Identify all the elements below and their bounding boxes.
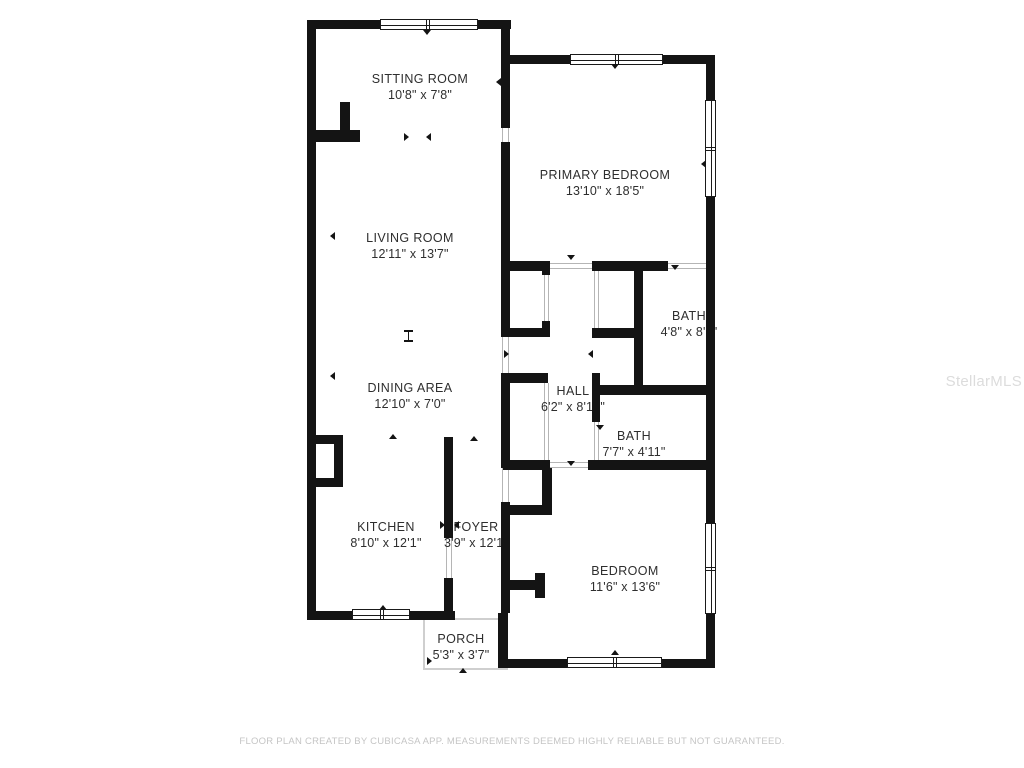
door-tick-icon [470,436,478,441]
door-tick-icon [454,521,459,529]
room-name: BATH [602,428,665,444]
room-dims: 10'8" x 7'8" [372,87,468,103]
room-name: SITTING ROOM [372,71,468,87]
window [380,19,478,30]
window [705,523,716,614]
room-dims: 7'7" x 4'11" [602,444,665,460]
room-name: BEDROOM [590,563,660,579]
door-opening-line [550,263,592,264]
room-label-dining-area: DINING AREA 12'10" x 7'0" [368,380,453,412]
stellar-mls-watermark: StellarMLS [946,373,1022,390]
wall [307,20,316,620]
door-opening-line [548,275,549,321]
wall [310,478,343,487]
door-opening-line [508,128,509,142]
door-tick-icon [330,372,335,380]
room-label-kitchen: KITCHEN 8'10" x 12'1" [350,519,421,551]
window-mullion [706,147,715,151]
wall [592,261,668,271]
door-tick-icon [567,461,575,466]
window-mullion [613,658,617,667]
door-tick-icon [404,133,409,141]
door-tick-icon [588,350,593,358]
door-tick-icon [504,350,509,358]
room-name: PRIMARY BEDROOM [540,167,671,183]
door-opening-line [550,268,592,269]
wall [501,142,510,337]
door-tick-icon [496,78,501,86]
room-dims: 11'6" x 13'6" [590,579,660,595]
wall [535,573,545,598]
window-mullion [615,55,619,64]
footer-disclaimer: FLOOR PLAN CREATED BY CUBICASA APP. MEAS… [0,736,1024,747]
door-tick-icon [427,657,432,665]
door-opening-line [668,263,706,264]
door-tick-icon [611,64,619,69]
room-label-bath-lower: BATH 7'7" x 4'11" [602,428,665,460]
door-tick-icon [459,668,467,673]
wall [501,502,510,613]
room-label-bedroom: BEDROOM 11'6" x 13'6" [590,563,660,595]
window [352,609,410,620]
door-opening-line [544,275,545,321]
door-tick-icon [423,30,431,35]
door-opening-line [598,271,599,330]
door-tick-icon [330,232,335,240]
wall [444,578,453,612]
door-opening-line [502,468,503,502]
wall [312,130,360,142]
room-name: KITCHEN [350,519,421,535]
window-mullion [426,20,430,29]
room-name: LIVING ROOM [366,230,454,246]
door-tick-icon [379,605,387,610]
wall [501,20,510,128]
wall [634,261,643,395]
door-tick-icon [611,650,619,655]
door-opening-line [502,337,503,373]
wall [542,261,550,275]
wall [340,102,350,140]
door-opening-line [508,468,509,502]
wall [588,460,708,470]
room-label-primary-bedroom: PRIMARY BEDROOM 13'10" x 18'5" [540,167,671,199]
wall [503,328,550,337]
wall [498,613,508,659]
room-dims: 12'10" x 7'0" [368,396,453,412]
room-name: PORCH [433,631,490,647]
wall [592,373,600,422]
wall [503,373,548,383]
room-label-porch: PORCH 5'3" x 3'7" [433,631,490,663]
window [567,657,662,668]
door-tick-icon [440,521,445,529]
wall [334,441,343,482]
room-dims: 12'11" x 13'7" [366,246,454,262]
room-dims: 8'10" x 12'1" [350,535,421,551]
door-opening-line [594,271,595,330]
door-tick-icon [671,265,679,270]
window-mullion [380,610,384,619]
room-label-living-room: LIVING ROOM 12'11" x 13'7" [366,230,454,262]
wall [501,373,510,468]
floor-plan: SITTING ROOM 10'8" x 7'8" PRIMARY BEDROO… [0,0,1024,768]
window-mullion [706,567,715,571]
window [705,100,716,197]
room-name: DINING AREA [368,380,453,396]
room-dims: 3'9" x 12'1" [444,535,508,551]
door-tick-icon [567,255,575,260]
door-tick-icon [426,133,431,141]
room-dims: 5'3" x 3'7" [433,647,490,663]
door-tick-icon [389,434,397,439]
door-opening-line [502,128,503,142]
door-tick-icon [701,160,706,168]
door-opening-line [550,467,588,468]
plan-marker-icon [404,330,413,342]
room-dims: 13'10" x 18'5" [540,183,671,199]
door-opening-line [594,422,595,460]
wall [598,385,715,395]
wall [444,437,453,538]
wall [503,505,552,515]
room-label-sitting-room: SITTING ROOM 10'8" x 7'8" [372,71,468,103]
door-tick-icon [596,425,604,430]
